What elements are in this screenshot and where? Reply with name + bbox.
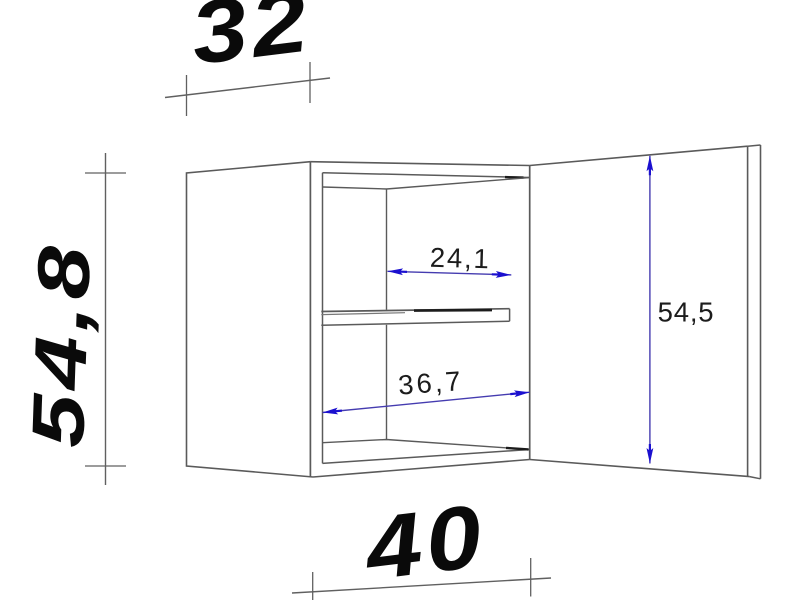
svg-text:54,5: 54,5	[658, 296, 715, 327]
svg-text:36,7: 36,7	[397, 365, 465, 400]
svg-text:24,1: 24,1	[429, 242, 491, 275]
svg-text:32: 32	[186, 0, 317, 84]
svg-text:54,8: 54,8	[17, 239, 107, 448]
